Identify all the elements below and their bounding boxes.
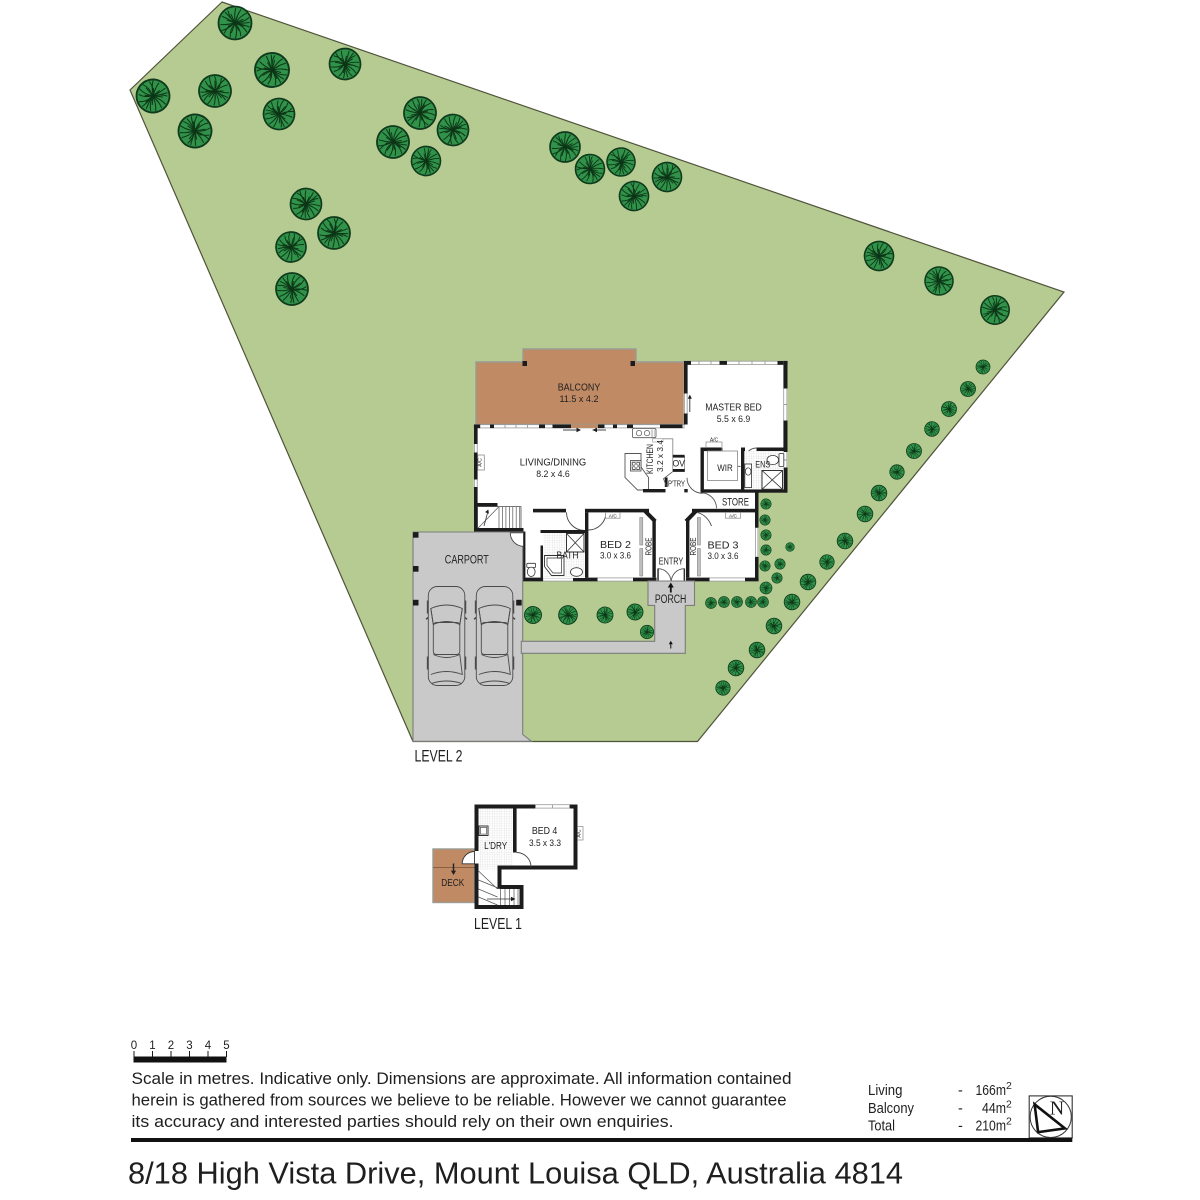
svg-text:44m: 44m bbox=[982, 1101, 1006, 1117]
svg-text:BED 4: BED 4 bbox=[532, 826, 558, 837]
svg-text:Balcony: Balcony bbox=[868, 1101, 915, 1117]
svg-text:BALCONY: BALCONY bbox=[558, 382, 601, 393]
svg-text:-: - bbox=[958, 1101, 963, 1117]
svg-text:BED 2: BED 2 bbox=[600, 540, 631, 551]
svg-text:Scale in metres. Indicative on: Scale in metres. Indicative only. Dimens… bbox=[132, 1069, 792, 1088]
svg-text:Living: Living bbox=[868, 1083, 903, 1099]
svg-text:BATH: BATH bbox=[557, 550, 579, 561]
svg-text:-: - bbox=[958, 1119, 963, 1135]
svg-text:ENS: ENS bbox=[755, 460, 770, 470]
svg-text:PORCH: PORCH bbox=[655, 594, 687, 606]
svg-text:N: N bbox=[1050, 1098, 1064, 1120]
svg-text:Total: Total bbox=[868, 1119, 895, 1135]
svg-text:LEVEL 2: LEVEL 2 bbox=[415, 747, 463, 766]
svg-text:ROBE: ROBE bbox=[645, 538, 654, 556]
svg-text:OV: OV bbox=[672, 459, 685, 469]
svg-text:2: 2 bbox=[168, 1040, 174, 1052]
svg-text:3.0 x 3.6: 3.0 x 3.6 bbox=[708, 551, 739, 561]
svg-text:3.0 x 3.6: 3.0 x 3.6 bbox=[600, 551, 631, 561]
svg-text:5.5 x 6.9: 5.5 x 6.9 bbox=[717, 414, 751, 424]
svg-text:2: 2 bbox=[1006, 1080, 1012, 1092]
svg-text:KITCHEN: KITCHEN bbox=[645, 444, 655, 474]
svg-text:11.5 x 4.2: 11.5 x 4.2 bbox=[560, 394, 599, 404]
svg-text:A/C: A/C bbox=[478, 458, 484, 467]
svg-text:5: 5 bbox=[223, 1040, 229, 1052]
svg-text:3.5 x 3.3: 3.5 x 3.3 bbox=[529, 838, 561, 848]
svg-text:0: 0 bbox=[131, 1040, 137, 1052]
svg-text:ENTRY: ENTRY bbox=[659, 555, 684, 567]
svg-text:166m: 166m bbox=[976, 1083, 1007, 1099]
svg-text:DECK: DECK bbox=[441, 878, 464, 889]
svg-text:ROBE: ROBE bbox=[689, 538, 698, 556]
svg-text:8/18 High Vista Drive, Mount L: 8/18 High Vista Drive, Mount Louisa QLD,… bbox=[128, 1157, 903, 1191]
svg-text:its accuracy and interested pa: its accuracy and interested parties shou… bbox=[132, 1112, 674, 1131]
svg-text:A/C: A/C bbox=[710, 437, 719, 443]
svg-text:A/C: A/C bbox=[577, 829, 583, 838]
svg-text:CARPORT: CARPORT bbox=[445, 554, 489, 566]
svg-text:P'TRY: P'TRY bbox=[668, 479, 686, 488]
svg-text:L'DRY: L'DRY bbox=[484, 841, 507, 852]
svg-text:210m: 210m bbox=[976, 1119, 1007, 1135]
svg-text:BED 3: BED 3 bbox=[708, 540, 739, 551]
svg-text:-: - bbox=[958, 1083, 963, 1099]
svg-text:8.2 x 4.6: 8.2 x 4.6 bbox=[536, 469, 570, 479]
svg-text:MASTER BED: MASTER BED bbox=[705, 402, 762, 413]
svg-text:herein is gathered from source: herein is gathered from sources we belie… bbox=[132, 1091, 787, 1110]
svg-text:4: 4 bbox=[205, 1040, 212, 1052]
svg-text:LIVING/DINING: LIVING/DINING bbox=[520, 457, 587, 468]
svg-text:A/C: A/C bbox=[729, 513, 738, 519]
svg-text:A/C: A/C bbox=[609, 513, 618, 519]
svg-text:1: 1 bbox=[149, 1040, 155, 1052]
svg-text:WIR: WIR bbox=[717, 463, 733, 473]
svg-text:STORE: STORE bbox=[722, 497, 749, 509]
svg-text:2: 2 bbox=[1006, 1116, 1012, 1128]
svg-text:2: 2 bbox=[1006, 1098, 1012, 1110]
svg-text:3: 3 bbox=[186, 1040, 192, 1052]
svg-text:3.2 x 3.4: 3.2 x 3.4 bbox=[655, 440, 665, 472]
svg-text:LEVEL 1: LEVEL 1 bbox=[474, 916, 522, 933]
